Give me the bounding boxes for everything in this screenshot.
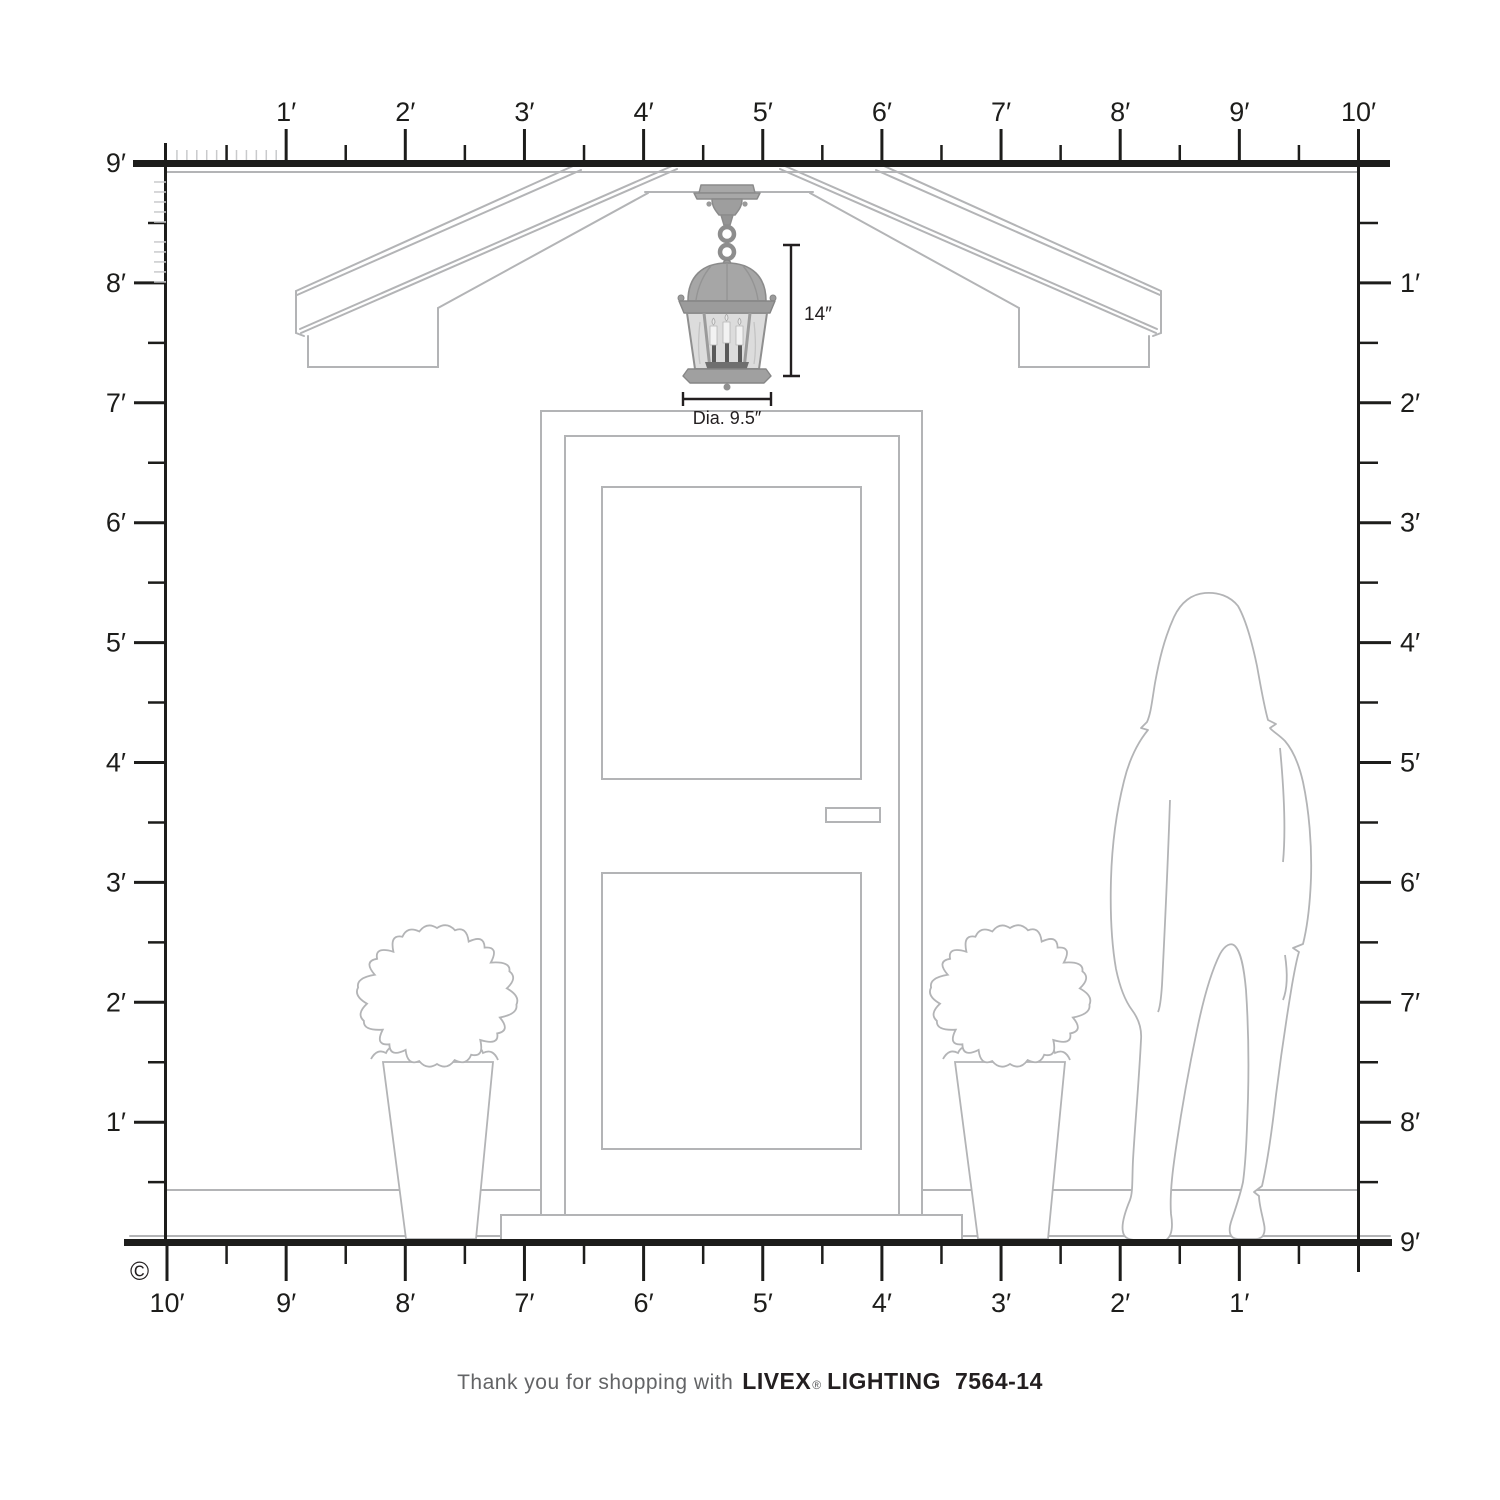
ruler-label: 6′ [1400,867,1420,897]
height-dimension-label: 14″ [804,304,832,325]
ruler-label: 8′ [395,1288,415,1318]
ruler-label: 6′ [106,508,126,538]
lantern-canopy [694,185,760,225]
ruler-label: 5′ [753,1288,773,1318]
roof-left [296,166,677,367]
ruler-label: 4′ [872,1288,892,1318]
ruler-label: 4′ [634,97,654,127]
right-topiary-bush [930,925,1090,1067]
lantern-body [683,313,771,391]
left-topiary [357,925,517,1239]
ruler-label: 2′ [395,97,415,127]
registered-trademark-symbol: ® [812,1378,821,1392]
ruler-label: 8′ [1110,97,1130,127]
model-number: 7564-14 [955,1368,1043,1395]
ruler-label: 2′ [1110,1288,1130,1318]
right-planter-pot [955,1062,1065,1239]
door-slab [565,436,899,1216]
ruler-label: 4′ [106,748,126,778]
bottom-ruler-bar [124,1239,1392,1246]
diameter-dimension: Dia. 9.5″ [683,392,771,428]
brand-name: LIVEX [742,1368,811,1395]
lantern-eave [679,301,775,313]
right-topiary [930,925,1090,1239]
ruler-label: 10′ [149,1288,184,1318]
pendant-lantern [678,185,776,391]
left-planter-pot [383,1062,493,1239]
ruler-label: 3′ [991,1288,1011,1318]
ruler-label: 4′ [1400,628,1420,658]
ruler-label: 5′ [106,628,126,658]
ruler-label: 7′ [514,1288,534,1318]
ruler-label: 1′ [276,97,296,127]
copyright-mark: © [130,1256,149,1286]
ruler-label: 7′ [991,97,1011,127]
door-step [501,1215,962,1242]
door-drawing [501,411,962,1242]
right-ruler-line [1357,143,1360,1272]
ruler-label: 3′ [106,867,126,897]
left-ruler-line [164,143,167,1246]
ruler-label: 5′ [753,97,773,127]
ruler-label: 10′ [1341,97,1376,127]
ruler-label: 7′ [106,388,126,418]
caption: Thank you for shopping with LIVEX ® LIGH… [0,1368,1500,1395]
ruler-label: 5′ [1400,748,1420,778]
lantern-base [683,369,771,383]
lantern-chain [720,227,734,259]
ruler-label: 9′ [276,1288,296,1318]
woman-silhouette [1111,593,1311,1240]
ruler-label: 9′ [106,148,126,178]
ruler-label: 1′ [1400,268,1420,298]
ruler-label: 3′ [514,97,534,127]
roof-right [780,166,1161,367]
scale-diagram: 14″ Dia. 9.5″ 1′2′3′4′5′6′7′8′9′10′10′9′… [0,0,1500,1500]
caption-prefix: Thank you for shopping with [457,1371,733,1395]
ruler-label: 8′ [1400,1107,1420,1137]
ruler-label: 1′ [1229,1288,1249,1318]
lantern-finial [724,384,731,391]
lantern-top [678,260,776,313]
height-dimension: 14″ [783,245,832,376]
ruler-label: 2′ [1400,388,1420,418]
ruler-label: 9′ [1400,1227,1420,1257]
diameter-dimension-label: Dia. 9.5″ [693,408,762,428]
ruler-label: 3′ [1400,508,1420,538]
ruler-label: 6′ [872,97,892,127]
ruler-label: 6′ [634,1288,654,1318]
left-topiary-bush [357,925,517,1067]
brand-name-2: LIGHTING [827,1368,941,1395]
ruler-label: 7′ [1400,987,1420,1017]
top-ruler-bar [133,160,1390,167]
ruler-label: 2′ [106,987,126,1017]
ruler-label: 1′ [106,1107,126,1137]
ruler-label: 8′ [106,268,126,298]
ruler-label: 9′ [1229,97,1249,127]
